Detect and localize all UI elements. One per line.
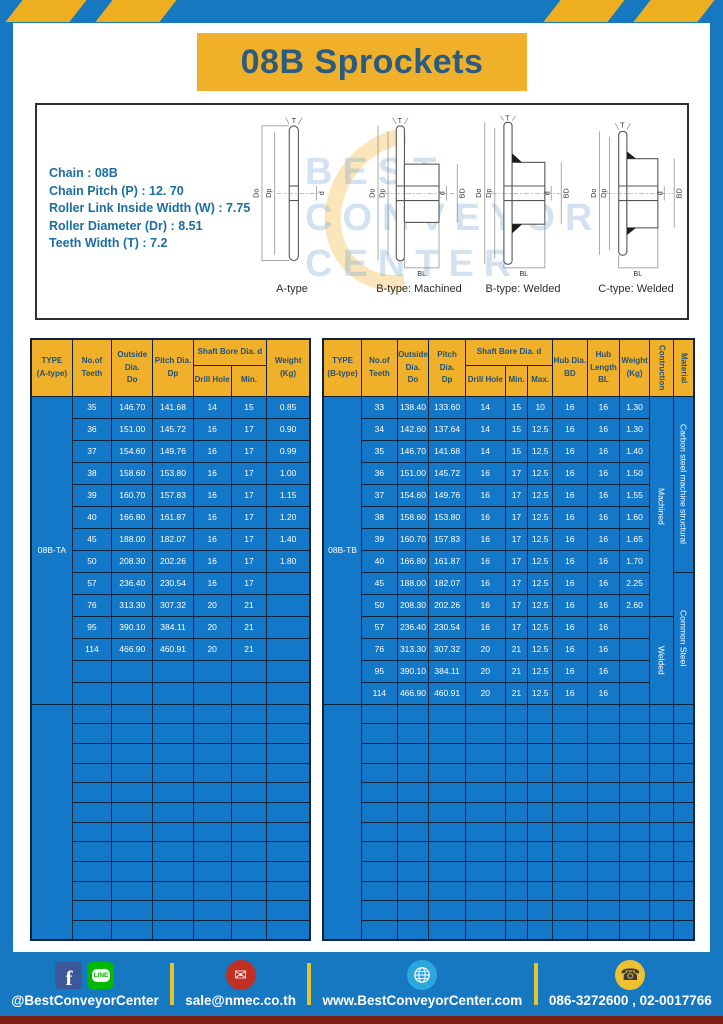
svg-text:BD: BD (458, 188, 467, 198)
table-cell: 16 (193, 572, 231, 594)
table-cell: 142.60 (397, 418, 429, 440)
table-cell: 20 (193, 594, 231, 616)
table-cell (465, 901, 505, 921)
table-cell: 16 (553, 616, 588, 638)
table-cell: 137.64 (429, 418, 466, 440)
table-cell (112, 682, 153, 704)
table-cell (112, 862, 153, 882)
table-cell (112, 704, 153, 724)
table-cell: 1.55 (620, 484, 650, 506)
column-header: Min. (505, 365, 528, 396)
svg-text:Dp: Dp (264, 189, 273, 198)
table-cell (429, 763, 466, 783)
table-cell: 17 (231, 484, 266, 506)
table-cell: 17 (505, 506, 528, 528)
table-cell (72, 743, 111, 763)
sprocket-drawing-b-type-machined: T Do Dp d BD BL B-type: Machined (364, 115, 474, 295)
table-cell (528, 743, 553, 763)
table-cell (620, 616, 650, 638)
table-cell (267, 660, 310, 682)
svg-text:T: T (292, 116, 297, 125)
table-cell: 202.26 (153, 550, 193, 572)
footer-divider (307, 963, 311, 1005)
table-cell (553, 901, 588, 921)
table-cell (112, 921, 153, 941)
merged-cell: Welded (649, 616, 673, 704)
table-cell: 16 (587, 462, 620, 484)
table-cell (553, 783, 588, 803)
table-cell (429, 921, 466, 941)
svg-text:d: d (317, 191, 326, 195)
table-cell (231, 901, 266, 921)
table-cell: 16 (193, 506, 231, 528)
table-cell (429, 901, 466, 921)
table-cell (153, 842, 193, 862)
table-cell: 1.15 (267, 484, 310, 506)
table-cell (620, 822, 650, 842)
table-cell: 384.11 (153, 616, 193, 638)
table-cell (528, 862, 553, 882)
table-cell: 40 (362, 550, 398, 572)
svg-text:Do: Do (589, 189, 598, 198)
table-cell (72, 842, 111, 862)
table-cell (620, 682, 650, 704)
table-cell: 14 (465, 440, 505, 462)
table-cell: 16 (587, 660, 620, 682)
table-cell (72, 763, 111, 783)
table-cell: 16 (587, 440, 620, 462)
table-cell: 40 (72, 506, 111, 528)
table-cell (553, 724, 588, 744)
table-cell: 182.07 (153, 528, 193, 550)
page-title: 08B Sprockets (241, 43, 484, 82)
phone-icon[interactable]: ☎ (615, 960, 645, 990)
table-cell: 16 (553, 396, 588, 418)
table-cell (193, 802, 231, 822)
table-cell (112, 822, 153, 842)
table-cell (231, 682, 266, 704)
table-cell (397, 783, 429, 803)
table-cell (231, 743, 266, 763)
table-cell: 38 (72, 462, 111, 484)
table-cell: 12.5 (528, 506, 553, 528)
table-cell (362, 763, 398, 783)
table-cell: 0.90 (267, 418, 310, 440)
svg-text:BD: BD (675, 188, 684, 198)
table-cell (397, 842, 429, 862)
table-cell: 114 (72, 638, 111, 660)
table-cell: 230.54 (153, 572, 193, 594)
table-cell (193, 862, 231, 882)
phone-numbers[interactable]: 086-3272600 , 02-0017766 (549, 993, 712, 1008)
column-header: OutsideDia.Do (112, 339, 153, 396)
table-cell (465, 704, 505, 724)
table-cell: 12.5 (528, 682, 553, 704)
table-cell (465, 862, 505, 882)
line-label: LINE (92, 969, 111, 982)
table-cell (153, 682, 193, 704)
table-cell (112, 842, 153, 862)
diagram-box: BEST CONVEYOR CENTER Chain : 08B Chain P… (35, 103, 689, 320)
table-cell: 16 (553, 572, 588, 594)
website-url[interactable]: www.BestConveyorCenter.com (322, 993, 522, 1008)
table-cell (505, 842, 528, 862)
svg-text:Do: Do (474, 189, 483, 198)
table-cell (267, 881, 310, 901)
table-cell: 16 (193, 440, 231, 462)
table-cell: 160.70 (112, 484, 153, 506)
mail-icon[interactable]: ✉ (226, 960, 256, 990)
table-cell: 166.80 (112, 506, 153, 528)
table-cell: 158.60 (397, 506, 429, 528)
table-cell: 2.60 (620, 594, 650, 616)
table-cell: 12.5 (528, 418, 553, 440)
column-header: TYPE(A-type) (31, 339, 72, 396)
table-cell (267, 802, 310, 822)
table-cell: 313.30 (397, 638, 429, 660)
bottom-edge-strip (0, 1016, 723, 1024)
table-cell: 15 (505, 440, 528, 462)
table-cell (465, 802, 505, 822)
table-cell: 21 (505, 638, 528, 660)
svg-text:BL: BL (519, 269, 528, 277)
table-cell (397, 901, 429, 921)
table-cell: 37 (72, 440, 111, 462)
table-cell: 202.26 (429, 594, 466, 616)
column-header: Material (673, 339, 694, 396)
table-cell (620, 881, 650, 901)
table-cell: 16 (553, 484, 588, 506)
table-cell (362, 822, 398, 842)
table-cell (429, 704, 466, 724)
type-cell (31, 704, 72, 940)
table-cell: 16 (465, 572, 505, 594)
svg-text:T: T (398, 116, 403, 125)
table-cell (72, 862, 111, 882)
table-cell (673, 724, 694, 744)
table-cell (528, 724, 553, 744)
table-cell: 182.07 (429, 572, 466, 594)
table-cell: 76 (72, 594, 111, 616)
table-cell (620, 921, 650, 941)
table-cell (429, 724, 466, 744)
table-cell: 16 (587, 418, 620, 440)
table-cell (649, 822, 673, 842)
table-cell (193, 901, 231, 921)
table-cell: 145.72 (429, 462, 466, 484)
table-cell: 16 (587, 550, 620, 572)
table-cell: 17 (505, 572, 528, 594)
svg-text:BL: BL (417, 269, 426, 277)
table-cell: 20 (193, 616, 231, 638)
table-cell: 146.70 (112, 396, 153, 418)
svg-text:Do: Do (251, 189, 260, 198)
table-cell: 12.5 (528, 528, 553, 550)
table-cell (673, 802, 694, 822)
table-cell (267, 862, 310, 882)
table-cell: 1.50 (620, 462, 650, 484)
table-cell (465, 743, 505, 763)
table-cell (231, 660, 266, 682)
spec-line: Chain Pitch (P) : 12. 70 (49, 183, 250, 201)
table-cell (553, 802, 588, 822)
table-cell: 460.91 (429, 682, 466, 704)
table-cell (465, 881, 505, 901)
table-cell: 12.5 (528, 616, 553, 638)
table-cell (267, 921, 310, 941)
facebook-handle[interactable]: @BestConveyorCenter (11, 993, 158, 1008)
table-cell (673, 743, 694, 763)
table-cell (620, 724, 650, 744)
email-address[interactable]: sale@nmec.co.th (185, 993, 296, 1008)
table-cell (193, 822, 231, 842)
column-header: Weight(Kg) (267, 339, 310, 396)
table-cell (231, 862, 266, 882)
column-header: Pitch Dia.Dp (429, 339, 466, 396)
table-cell (72, 724, 111, 744)
sprocket-table-b-type: TYPE(B-type)No.ofTeethOutsideDia.DoPitch… (322, 338, 695, 941)
table-cell (231, 783, 266, 803)
table-cell: 15 (231, 396, 266, 418)
table-cell (72, 704, 111, 724)
table-cell: 12.5 (528, 638, 553, 660)
table-cell: 21 (231, 638, 266, 660)
table-cell: 16 (587, 682, 620, 704)
table-cell (153, 704, 193, 724)
table-cell (397, 822, 429, 842)
spec-line: Roller Link Inside Width (W) : 7.75 (49, 200, 250, 218)
table-cell: 2.25 (620, 572, 650, 594)
table-cell: 16 (587, 594, 620, 616)
table-cell (72, 901, 111, 921)
table-cell: 17 (505, 616, 528, 638)
table-cell (528, 921, 553, 941)
table-cell (528, 842, 553, 862)
table-cell: 1.00 (267, 462, 310, 484)
table-cell: 16 (553, 528, 588, 550)
column-header: Max. (528, 365, 553, 396)
table-cell: 35 (362, 440, 398, 462)
column-header: Drill Hole (465, 365, 505, 396)
table-cell (429, 862, 466, 882)
table-cell: 16 (465, 506, 505, 528)
column-header: Shaft Bore Dia. d (465, 339, 552, 365)
spec-line: Teeth Width (T) : 7.2 (49, 235, 250, 253)
column-header: No.ofTeeth (362, 339, 398, 396)
table-cell: 12.5 (528, 462, 553, 484)
table-cell: 16 (587, 396, 620, 418)
table-cell: 16 (587, 638, 620, 660)
table-cell (505, 704, 528, 724)
table-cell: 149.76 (429, 484, 466, 506)
table-cell: 17 (231, 528, 266, 550)
table-cell (231, 842, 266, 862)
facebook-icon[interactable]: f (55, 962, 82, 989)
table-cell: 17 (231, 572, 266, 594)
table-cell (553, 743, 588, 763)
table-cell (193, 660, 231, 682)
table-cell: 157.83 (153, 484, 193, 506)
table-cell (673, 881, 694, 901)
table-cell (465, 842, 505, 862)
type-cell: 08B-TB (323, 396, 362, 704)
spec-line: Chain : 08B (49, 165, 250, 183)
drawing-label: C-type: Welded (581, 283, 689, 295)
table-cell: 17 (505, 462, 528, 484)
table-cell: 16 (465, 462, 505, 484)
table-cell (587, 724, 620, 744)
table-cell (429, 822, 466, 842)
table-cell: 1.40 (267, 528, 310, 550)
table-cell (505, 763, 528, 783)
table-cell: 12.5 (528, 484, 553, 506)
table-cell: 16 (193, 418, 231, 440)
table-cell (429, 802, 466, 822)
table-cell: 20 (465, 660, 505, 682)
table-cell (112, 763, 153, 783)
column-header: TYPE(B-type) (323, 339, 362, 396)
table-cell (620, 743, 650, 763)
table-cell (620, 638, 650, 660)
catalog-page: 08B Sprockets BEST CONVEYOR CENTER Chain… (0, 0, 723, 1024)
table-cell: 166.80 (397, 550, 429, 572)
table-cell (673, 822, 694, 842)
table-cell: 188.00 (397, 572, 429, 594)
table-cell: 154.60 (112, 440, 153, 462)
table-cell (153, 901, 193, 921)
table-cell: 10 (528, 396, 553, 418)
spec-line: Roller Diameter (Dr) : 8.51 (49, 218, 250, 236)
table-cell: 16 (465, 616, 505, 638)
table-cell: 57 (362, 616, 398, 638)
table-cell (587, 704, 620, 724)
table-cell (553, 763, 588, 783)
table-cell: 157.83 (429, 528, 466, 550)
table-cell: 36 (362, 462, 398, 484)
table-cell (649, 842, 673, 862)
corner-stripe (95, 0, 176, 22)
table-cell (649, 783, 673, 803)
table-cell (231, 724, 266, 744)
table-cell: 57 (72, 572, 111, 594)
svg-text:d: d (655, 191, 664, 195)
table-cell: 17 (231, 418, 266, 440)
table-cell (649, 704, 673, 724)
table-cell: 50 (72, 550, 111, 572)
table-cell: 16 (587, 616, 620, 638)
table-cell: 12.5 (528, 440, 553, 462)
table-cell (267, 638, 310, 660)
column-header: Shaft Bore Dia. d (193, 339, 267, 365)
table-cell (362, 842, 398, 862)
table-cell: 33 (362, 396, 398, 418)
merged-cell: Machined (649, 396, 673, 616)
table-cell (505, 881, 528, 901)
column-header: OutsideDia.Do (397, 339, 429, 396)
table-cell (267, 901, 310, 921)
table-cell: 12.5 (528, 572, 553, 594)
table-cell (397, 881, 429, 901)
table-cell (267, 724, 310, 744)
table-cell (362, 783, 398, 803)
table-cell: 236.40 (397, 616, 429, 638)
table-cell: 0.99 (267, 440, 310, 462)
table-cell: 12.5 (528, 594, 553, 616)
table-cell (673, 783, 694, 803)
globe-icon[interactable] (407, 960, 437, 990)
table-cell: 95 (72, 616, 111, 638)
table-cell: 38 (362, 506, 398, 528)
table-cell (649, 743, 673, 763)
contact-footer: f LINE @BestConveyorCenter ✉ sale@nmec.c… (0, 952, 723, 1016)
table-cell: 21 (231, 594, 266, 616)
table-cell: 16 (193, 462, 231, 484)
table-cell: 17 (231, 440, 266, 462)
line-app-icon[interactable]: LINE (87, 962, 114, 989)
table-cell: 1.30 (620, 396, 650, 418)
table-cell (587, 802, 620, 822)
table-cell (267, 842, 310, 862)
footer-website-group: www.BestConveyorCenter.com (322, 960, 522, 1008)
table-cell (553, 881, 588, 901)
table-cell: 160.70 (397, 528, 429, 550)
table-cell (72, 660, 111, 682)
table-cell (673, 704, 694, 724)
table-cell (72, 682, 111, 704)
table-cell (153, 881, 193, 901)
table-cell: 153.80 (153, 462, 193, 484)
corner-stripe (633, 0, 714, 22)
table-cell: 16 (553, 440, 588, 462)
table-cell (193, 763, 231, 783)
table-cell: 1.30 (620, 418, 650, 440)
table-cell (397, 802, 429, 822)
table-cell (528, 763, 553, 783)
column-header: Drill Hole (193, 365, 231, 396)
table-cell (587, 862, 620, 882)
table-cell: 158.60 (112, 462, 153, 484)
table-cell (397, 921, 429, 941)
table-cell (193, 724, 231, 744)
table-cell: 141.68 (153, 396, 193, 418)
table-cell (231, 822, 266, 842)
table-cell (587, 901, 620, 921)
table-cell: 208.30 (112, 550, 153, 572)
table-cell (465, 822, 505, 842)
table-cell (193, 682, 231, 704)
table-cell (153, 783, 193, 803)
table-cell: 460.91 (153, 638, 193, 660)
table-cell (153, 822, 193, 842)
table-cell: 16 (553, 506, 588, 528)
table-cell (505, 921, 528, 941)
table-cell (267, 763, 310, 783)
table-cell (553, 862, 588, 882)
table-cell: 14 (465, 418, 505, 440)
table-cell (231, 921, 266, 941)
table-cell (193, 704, 231, 724)
table-cell (362, 921, 398, 941)
table-cell: 14 (465, 396, 505, 418)
table-cell: 16 (465, 550, 505, 572)
table-cell: 1.60 (620, 506, 650, 528)
table-cell: 466.90 (397, 682, 429, 704)
table-cell: 149.76 (153, 440, 193, 462)
corner-stripe (543, 0, 624, 22)
table-cell: 76 (362, 638, 398, 660)
table-cell (528, 704, 553, 724)
table-cell: 16 (193, 484, 231, 506)
